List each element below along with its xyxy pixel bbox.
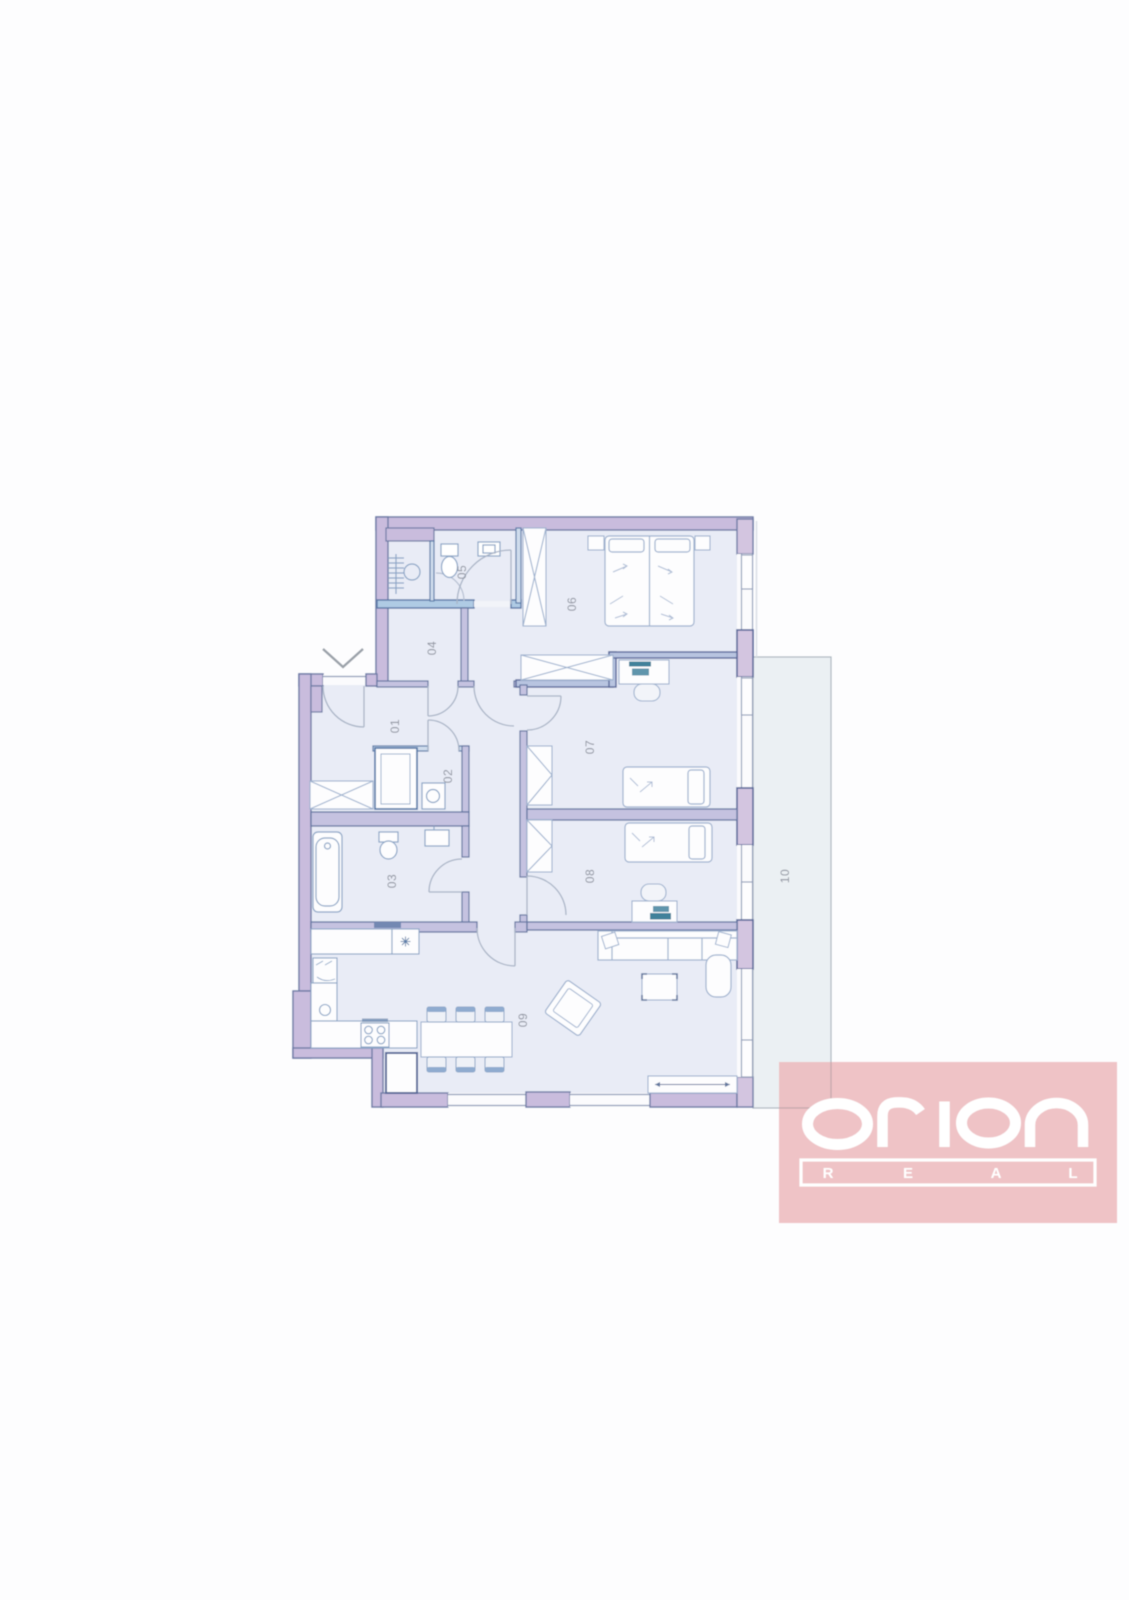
svg-text:10: 10 bbox=[778, 869, 792, 883]
svg-text:06: 06 bbox=[565, 597, 579, 611]
svg-text:09: 09 bbox=[516, 1013, 530, 1027]
svg-text:05: 05 bbox=[455, 565, 469, 579]
svg-text:04: 04 bbox=[425, 641, 439, 655]
svg-text:L: L bbox=[1068, 1165, 1077, 1182]
svg-text:R: R bbox=[823, 1165, 834, 1182]
svg-text:E: E bbox=[903, 1165, 913, 1182]
svg-text:02: 02 bbox=[441, 769, 455, 783]
svg-text:01: 01 bbox=[388, 719, 402, 733]
svg-text:03: 03 bbox=[385, 874, 399, 888]
svg-text:A: A bbox=[991, 1165, 1002, 1182]
svg-text:07: 07 bbox=[583, 740, 597, 754]
svg-text:08: 08 bbox=[583, 869, 597, 883]
